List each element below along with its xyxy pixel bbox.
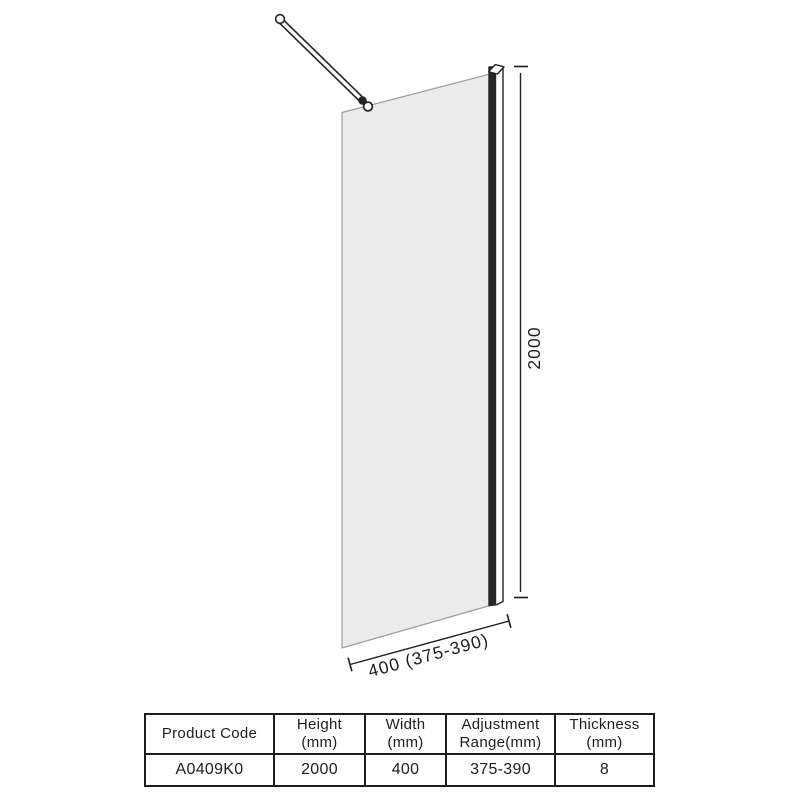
shower-screen-diagram: 2000 400 (375-390): [0, 0, 800, 710]
header-adjustment-range: AdjustmentRange(mm): [446, 714, 555, 754]
wall-profile-bar: [489, 67, 496, 606]
cell-product-code: A0409K0: [145, 754, 274, 786]
height-dimension-label: 2000: [524, 326, 544, 369]
header-line2: (mm): [275, 734, 364, 752]
header-line2: Range(mm): [447, 734, 554, 752]
spec-table-header-row: Product Code Height(mm) Width(mm) Adjust…: [145, 714, 654, 754]
header-line1: Adjustment: [447, 716, 554, 734]
cell-width: 400: [365, 754, 446, 786]
product-diagram-page: 2000 400 (375-390) Product Code Height(m…: [0, 0, 800, 800]
header-line2: (mm): [366, 734, 445, 752]
cell-adjustment-range: 375-390: [446, 754, 555, 786]
glass-panel: [342, 74, 490, 648]
header-thickness: Thickness(mm): [555, 714, 654, 754]
support-bar: [281, 21, 362, 100]
cell-thickness: 8: [555, 754, 654, 786]
cell-height: 2000: [274, 754, 365, 786]
header-line1: Thickness: [556, 716, 653, 734]
spec-table-data-row: A0409K0 2000 400 375-390 8: [145, 754, 654, 786]
header-height: Height(mm): [274, 714, 365, 754]
header-line1: Width: [366, 716, 445, 734]
header-line2: (mm): [556, 734, 653, 752]
glass-clamp-ring: [364, 102, 373, 111]
header-line1: Height: [275, 716, 364, 734]
header-product-code: Product Code: [145, 714, 274, 754]
header-line1: Product Code: [146, 725, 273, 743]
spec-table: Product Code Height(mm) Width(mm) Adjust…: [144, 713, 655, 787]
header-width: Width(mm): [365, 714, 446, 754]
support-bar-wall-anchor: [276, 15, 285, 24]
